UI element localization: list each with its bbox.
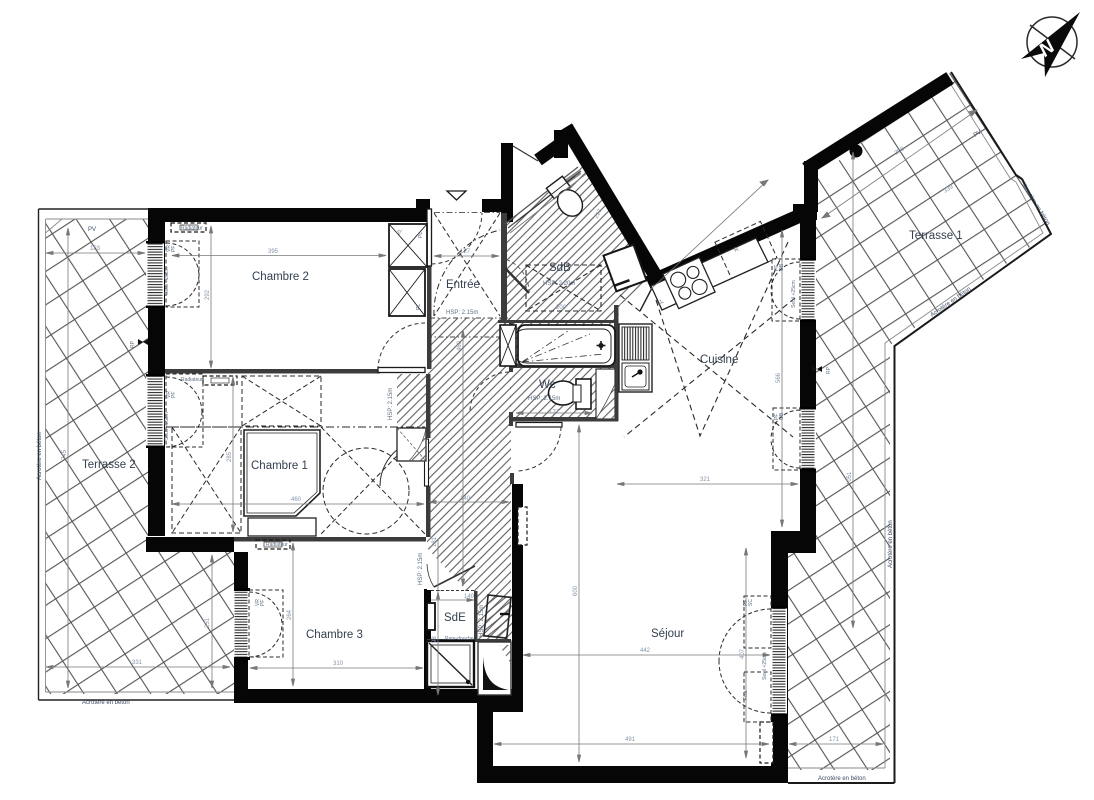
svg-text:Cuisine: Cuisine <box>700 354 738 366</box>
svg-text:HSP: 2.15m: HSP: 2.15m <box>479 605 485 637</box>
svg-text:Seuil +25cm: Seuil +25cm <box>762 652 768 680</box>
svg-text:PL: PL <box>418 232 424 238</box>
svg-text:PF: PF <box>171 392 177 398</box>
svg-text:310: 310 <box>333 661 344 667</box>
svg-text:127: 127 <box>460 249 471 255</box>
svg-text:PF: PF <box>260 600 266 606</box>
svg-text:1051: 1051 <box>847 471 853 485</box>
svg-text:140: 140 <box>460 496 471 502</box>
svg-text:321: 321 <box>700 477 711 483</box>
svg-text:566: 566 <box>776 372 782 383</box>
svg-text:Radiateur: Radiateur <box>181 377 203 383</box>
svg-text:171: 171 <box>829 737 840 743</box>
svg-text:Radiateur: Radiateur <box>181 226 203 232</box>
svg-text:181: 181 <box>432 536 438 547</box>
svg-text:Séjour: Séjour <box>651 628 684 640</box>
svg-text:Chambre 2: Chambre 2 <box>252 271 309 283</box>
svg-text:Seuil +25cm: Seuil +25cm <box>164 412 170 440</box>
svg-text:HSP: 2.15m: HSP: 2.15m <box>446 310 478 316</box>
svg-text:RP: RP <box>130 340 136 348</box>
svg-text:HSP: 2.15m: HSP: 2.15m <box>388 388 394 420</box>
svg-text:Wc: Wc <box>539 379 556 391</box>
svg-text:OB: OB <box>779 412 785 420</box>
svg-text:285: 285 <box>227 451 233 462</box>
svg-text:98: 98 <box>432 636 438 643</box>
svg-text:460: 460 <box>291 497 302 503</box>
svg-text:SC: SC <box>748 599 754 606</box>
svg-text:251: 251 <box>205 617 211 628</box>
svg-text:200: 200 <box>556 305 567 311</box>
svg-text:Acrotère en béton: Acrotère en béton <box>82 700 130 706</box>
svg-text:Terrasse 2: Terrasse 2 <box>82 459 136 471</box>
svg-text:183: 183 <box>90 246 101 252</box>
svg-text:PL: PL <box>416 304 422 310</box>
svg-text:HSP: 2.15m: HSP: 2.15m <box>418 553 424 585</box>
svg-text:Acrotère en béton: Acrotère en béton <box>888 520 894 568</box>
svg-text:460: 460 <box>457 340 463 351</box>
svg-text:331: 331 <box>132 660 143 666</box>
svg-text:745: 745 <box>62 449 68 460</box>
svg-text:Seuil +25cm: Seuil +25cm <box>791 280 797 308</box>
svg-text:RP: RP <box>826 366 832 374</box>
svg-text:Acrotère en béton: Acrotère en béton <box>818 776 866 782</box>
svg-text:Radiateur: Radiateur <box>266 542 288 548</box>
svg-text:Acrotère en béton: Acrotère en béton <box>37 432 43 480</box>
svg-text:Chambre 3: Chambre 3 <box>306 629 363 641</box>
svg-text:Fixe: Fixe <box>743 690 749 700</box>
svg-text:PF: PF <box>171 246 177 252</box>
svg-text:HSP: 2.15m: HSP: 2.15m <box>528 396 560 402</box>
svg-text:Terrasse 1: Terrasse 1 <box>909 230 963 242</box>
svg-text:407: 407 <box>740 648 746 659</box>
svg-text:SdB: SdB <box>549 262 571 274</box>
svg-text:Seuil +25cm: Seuil +25cm <box>164 267 170 295</box>
svg-text:Pare-douche: Pare-douche <box>445 636 474 642</box>
svg-text:140: 140 <box>464 594 475 600</box>
svg-text:Chambre 1: Chambre 1 <box>251 460 308 472</box>
svg-text:600: 600 <box>573 585 579 596</box>
svg-text:395: 395 <box>268 249 279 255</box>
svg-text:137: 137 <box>549 410 560 416</box>
svg-text:Entrée: Entrée <box>446 279 480 291</box>
svg-text:PV: PV <box>88 227 96 233</box>
svg-text:OB: OB <box>779 263 785 271</box>
svg-text:292: 292 <box>205 289 211 300</box>
svg-text:SdE: SdE <box>444 612 466 624</box>
svg-text:HSP: 2.20m: HSP: 2.20m <box>543 281 575 287</box>
svg-text:442: 442 <box>640 648 651 654</box>
svg-text:491: 491 <box>625 737 636 743</box>
svg-text:264: 264 <box>287 609 293 620</box>
